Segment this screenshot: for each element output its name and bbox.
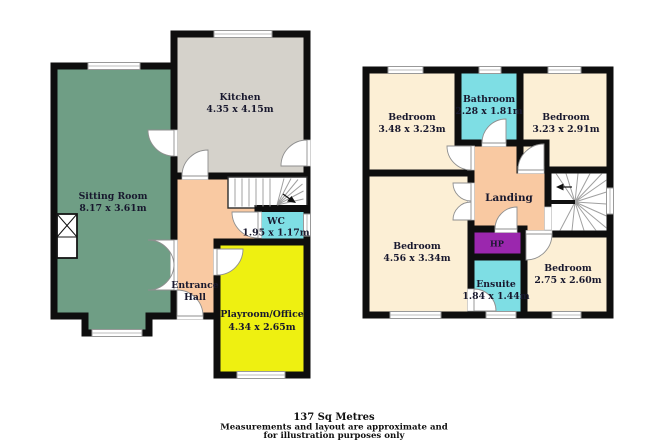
label-hp: HP — [490, 239, 504, 249]
label-bathroom-dims: 2.28 x 1.81m — [455, 106, 522, 117]
total-area-text: 137 Sq Metres — [293, 412, 375, 423]
stairs-entry-opening — [545, 207, 552, 230]
label-sitting-room-dims: 8.17 x 3.61m — [79, 203, 146, 214]
label-playroom-dims: 4.34 x 2.65m — [228, 322, 295, 333]
label-bedroom-back-left-dims: 4.56 x 3.34m — [383, 253, 450, 264]
label-bedroom-front-right-name: Bedroom — [542, 112, 590, 123]
label-sitting-room-name: Sitting Room — [79, 191, 148, 202]
label-entrance-hall-line1: Entrance — [171, 280, 218, 291]
label-bedroom-front-left-dims: 3.48 x 3.23m — [378, 124, 445, 135]
label-wc-name: WC — [266, 216, 285, 227]
label-ensuite-name: Ensuite — [476, 279, 516, 290]
first-floor-plan: Bedroom 3.48 x 3.23m Bathroom 2.28 x 1.8… — [366, 67, 614, 319]
label-kitchen-dims: 4.35 x 4.15m — [206, 104, 273, 115]
label-bathroom-name: Bathroom — [463, 94, 515, 105]
stairs-ground — [228, 177, 307, 208]
label-bedroom-back-right-dims: 2.75 x 2.60m — [534, 275, 601, 286]
label-kitchen-name: Kitchen — [219, 92, 260, 103]
label-wc-dims: 1.95 x 1.17m — [242, 228, 309, 239]
footer: 137 Sq Metres Measurements and layout ar… — [220, 412, 448, 441]
label-entrance-hall-line2: Hall — [184, 292, 206, 303]
floorplan-page: Sitting Room 8.17 x 3.61m Kitchen 4.35 x… — [0, 0, 668, 445]
label-bedroom-back-left-name: Bedroom — [393, 241, 441, 252]
label-bedroom-back-right-name: Bedroom — [544, 263, 592, 274]
fireplace-icon — [57, 214, 77, 258]
disclaimer-line2: for illustration purposes only — [264, 431, 406, 441]
label-bedroom-front-left-name: Bedroom — [388, 112, 436, 123]
label-ensuite-dims: 1.84 x 1.44m — [462, 291, 529, 302]
label-bedroom-front-right-dims: 3.23 x 2.91m — [532, 124, 599, 135]
label-landing: Landing — [485, 192, 533, 204]
label-playroom-name: Playroom/Office — [220, 309, 303, 320]
ground-floor-plan: Sitting Room 8.17 x 3.61m Kitchen 4.35 x… — [54, 31, 311, 379]
floorplan-drawing: Sitting Room 8.17 x 3.61m Kitchen 4.35 x… — [0, 0, 668, 445]
